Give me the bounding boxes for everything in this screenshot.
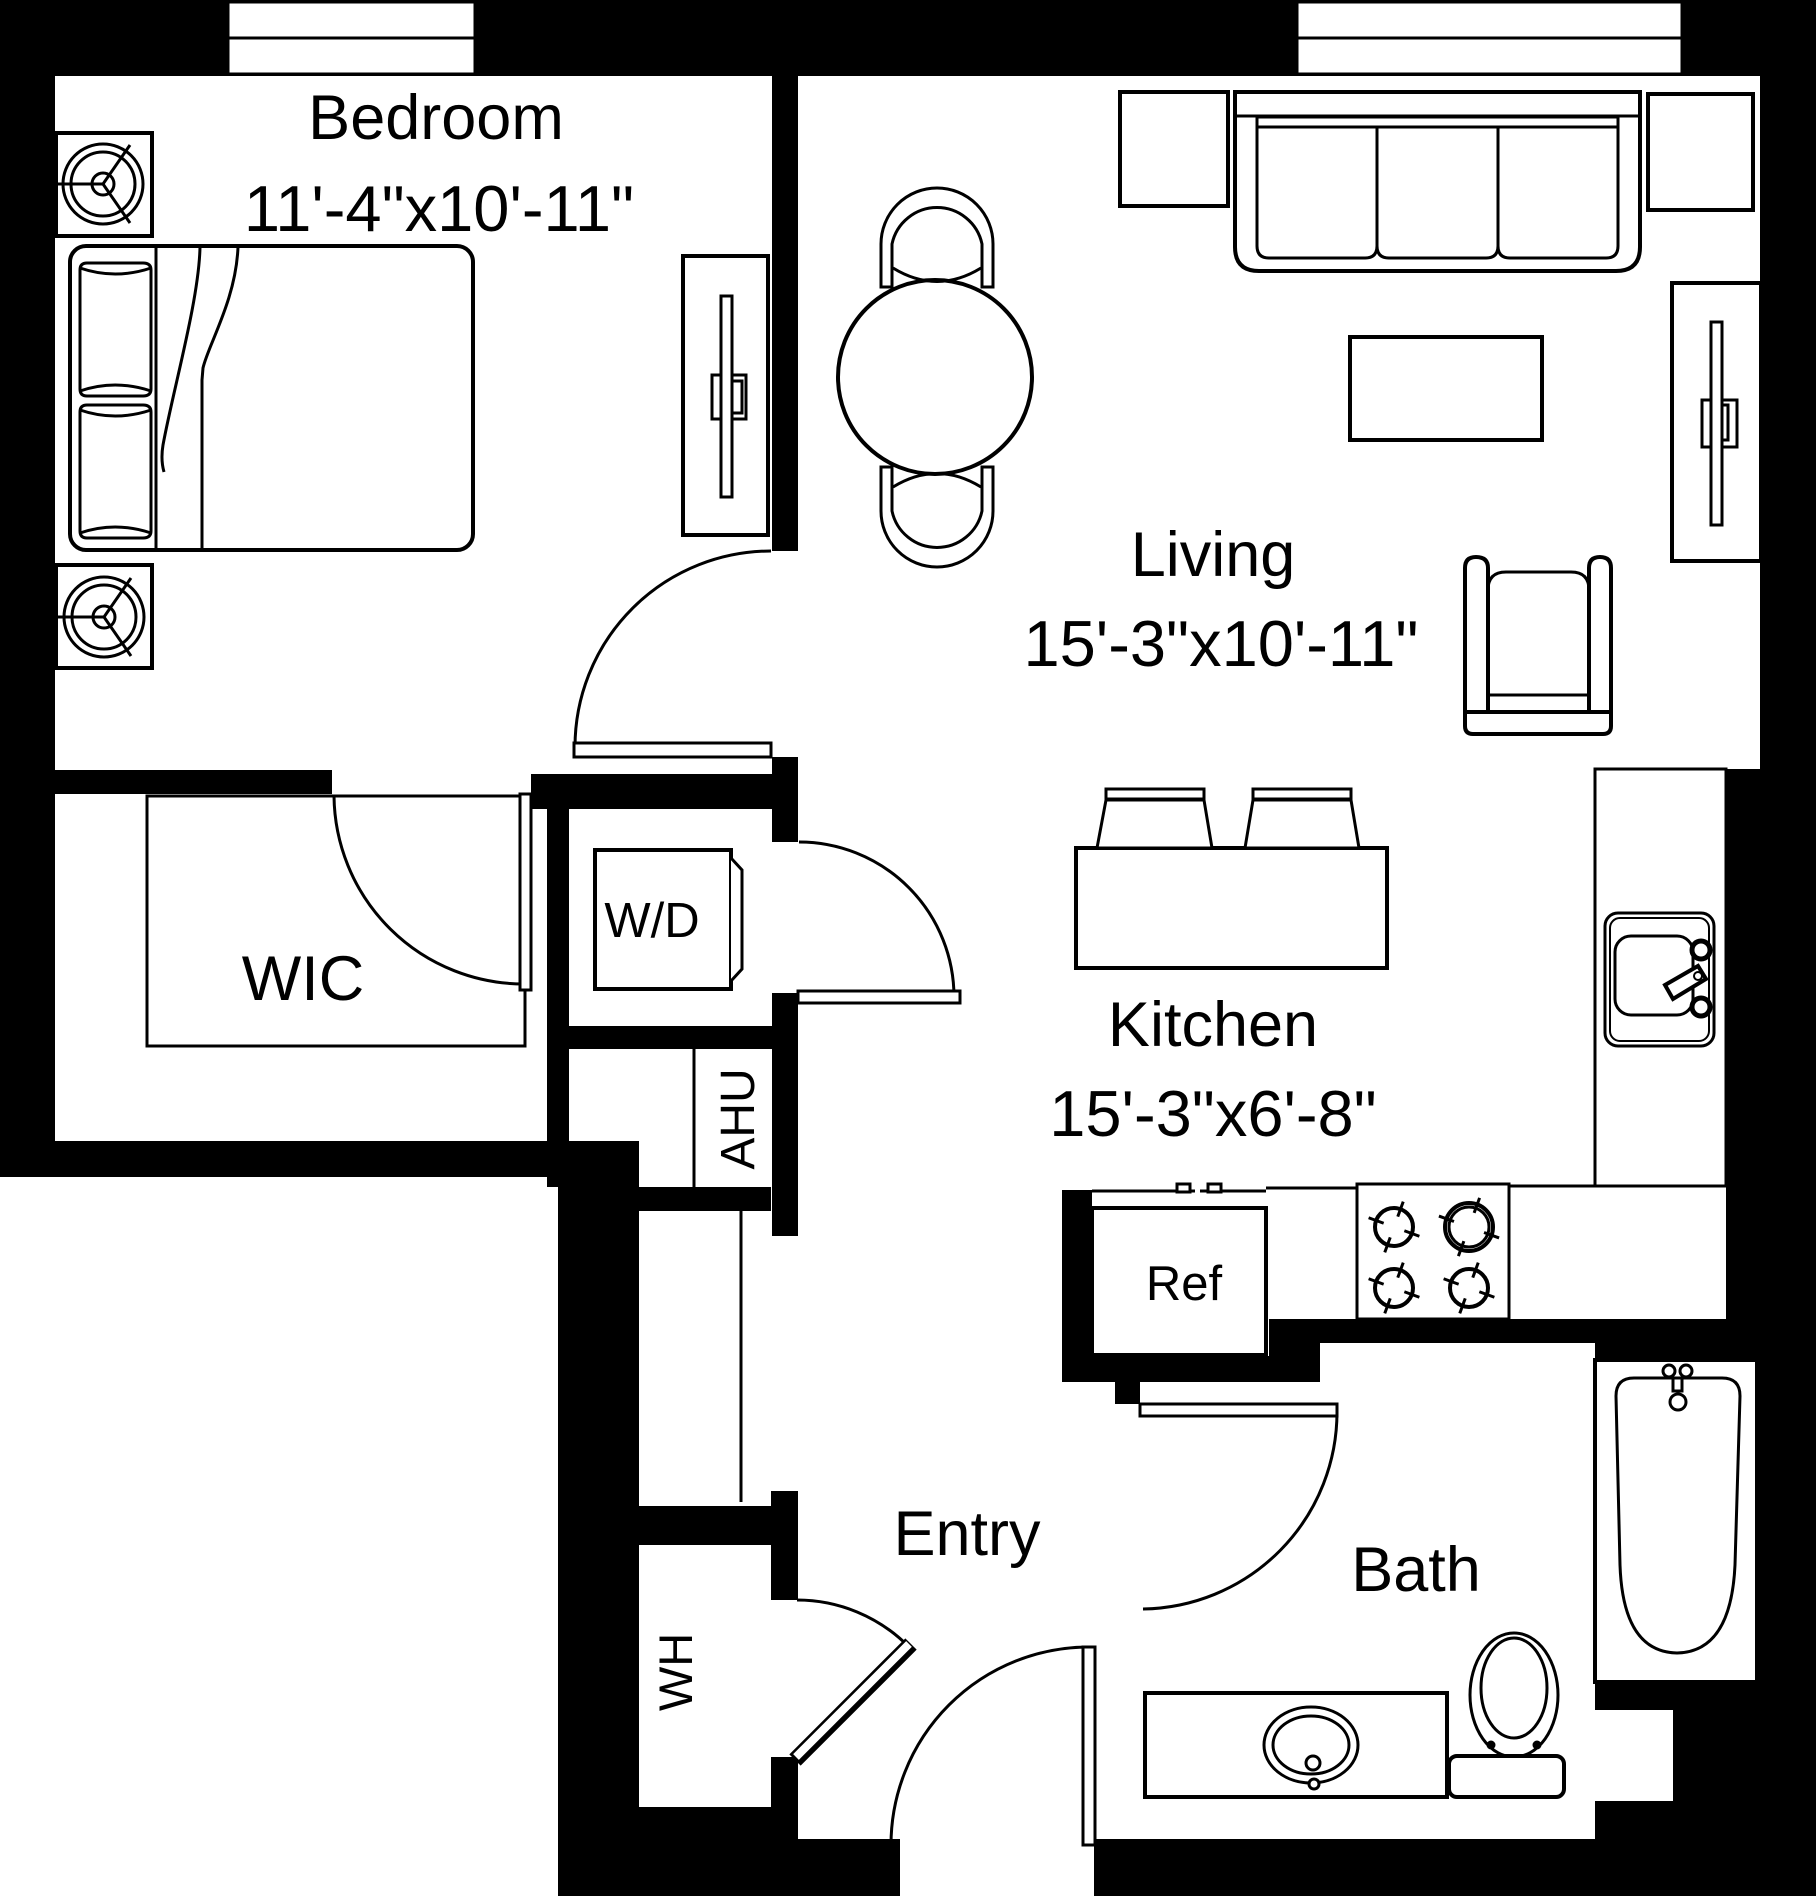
svg-text:AHU: AHU xyxy=(712,1068,765,1169)
svg-text:Living: Living xyxy=(1131,520,1296,590)
svg-text:Ref: Ref xyxy=(1146,1257,1223,1311)
svg-text:Entry: Entry xyxy=(893,1499,1041,1569)
svg-text:WH: WH xyxy=(649,1633,702,1711)
svg-text:11'-4"x10'-11": 11'-4"x10'-11" xyxy=(244,172,634,245)
svg-text:W/D: W/D xyxy=(604,894,699,948)
svg-text:Bath: Bath xyxy=(1351,1535,1481,1605)
svg-text:Kitchen: Kitchen xyxy=(1108,990,1318,1060)
svg-text:Bedroom: Bedroom xyxy=(308,83,564,153)
svg-text:WIC: WIC xyxy=(242,944,364,1014)
svg-text:15'-3"x10'-11": 15'-3"x10'-11" xyxy=(1024,607,1419,680)
svg-text:15'-3"x6'-8": 15'-3"x6'-8" xyxy=(1049,1077,1377,1150)
